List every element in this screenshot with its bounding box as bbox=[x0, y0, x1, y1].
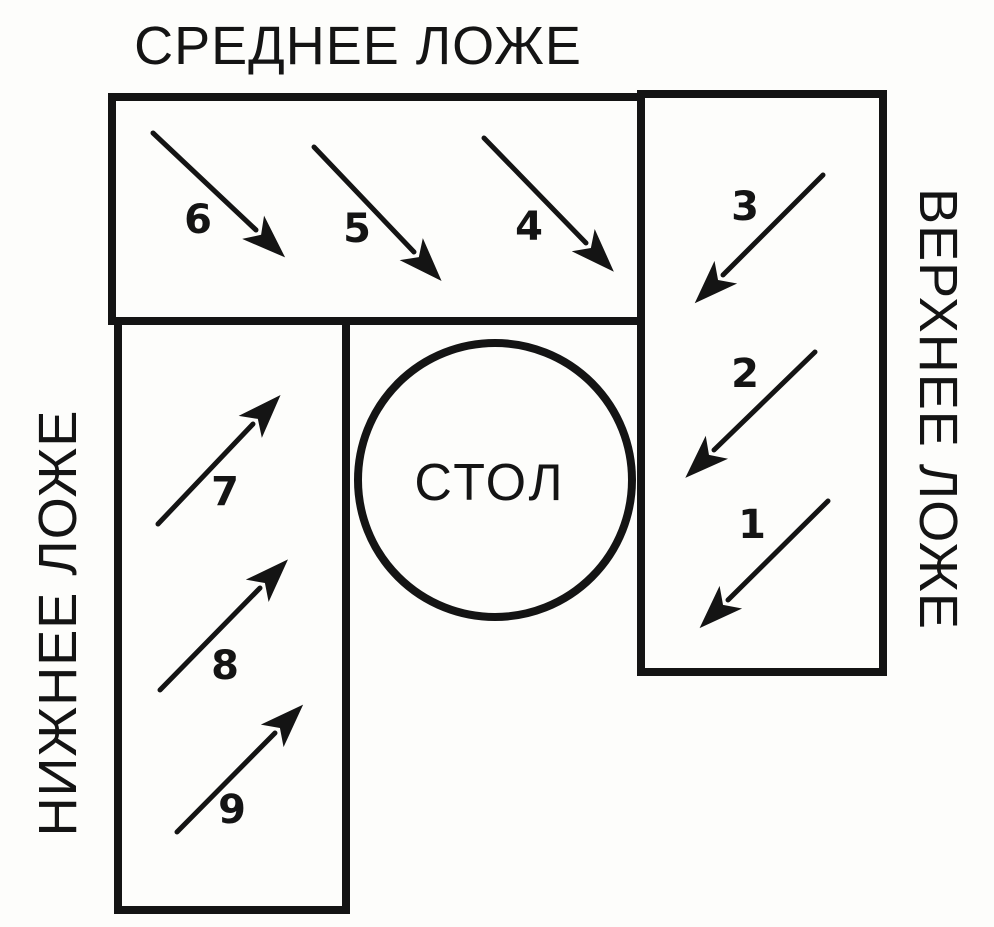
lodge-seating-diagram: СТОЛ СРЕДНЕЕ ЛОЖЕ ВЕРХНЕЕ ЛОЖЕ НИЖНЕЕ ЛО… bbox=[0, 0, 994, 927]
arrow-1: 1 bbox=[728, 501, 828, 600]
arrow-9: 9 bbox=[177, 733, 275, 833]
arrow-3: 3 bbox=[723, 175, 823, 275]
arrow-8-label: 8 bbox=[211, 643, 239, 689]
arrow-5-label: 5 bbox=[343, 206, 371, 252]
arrow-4-label: 4 bbox=[515, 204, 543, 250]
table-label: СТОЛ bbox=[414, 454, 565, 512]
lower-lodge-title: НИЖНЕЕ ЛОЖЕ bbox=[28, 410, 88, 837]
scanned-diagram: СТОЛ СРЕДНЕЕ ЛОЖЕ ВЕРХНЕЕ ЛОЖЕ НИЖНЕЕ ЛО… bbox=[0, 0, 994, 927]
arrow-2-label: 2 bbox=[731, 351, 759, 397]
upper-lodge-room bbox=[641, 94, 883, 672]
middle-lodge-title: СРЕДНЕЕ ЛОЖЕ bbox=[134, 16, 582, 76]
arrow-4: 4 bbox=[484, 138, 586, 250]
arrow-6-label: 6 bbox=[184, 197, 212, 243]
arrow-8: 8 bbox=[160, 588, 260, 690]
arrow-8-shaft bbox=[160, 588, 260, 690]
arrow-2: 2 bbox=[714, 351, 815, 450]
arrow-5: 5 bbox=[314, 147, 414, 252]
arrow-9-label: 9 bbox=[218, 787, 246, 833]
arrow-3-label: 3 bbox=[731, 184, 759, 230]
arrow-7-label: 7 bbox=[211, 469, 239, 515]
arrow-2-shaft bbox=[714, 352, 815, 450]
upper-lodge-title: ВЕРХНЕЕ ЛОЖЕ bbox=[908, 188, 968, 630]
arrow-6: 6 bbox=[153, 133, 256, 243]
arrow-1-label: 1 bbox=[738, 502, 766, 548]
arrow-7: 7 bbox=[158, 424, 253, 524]
